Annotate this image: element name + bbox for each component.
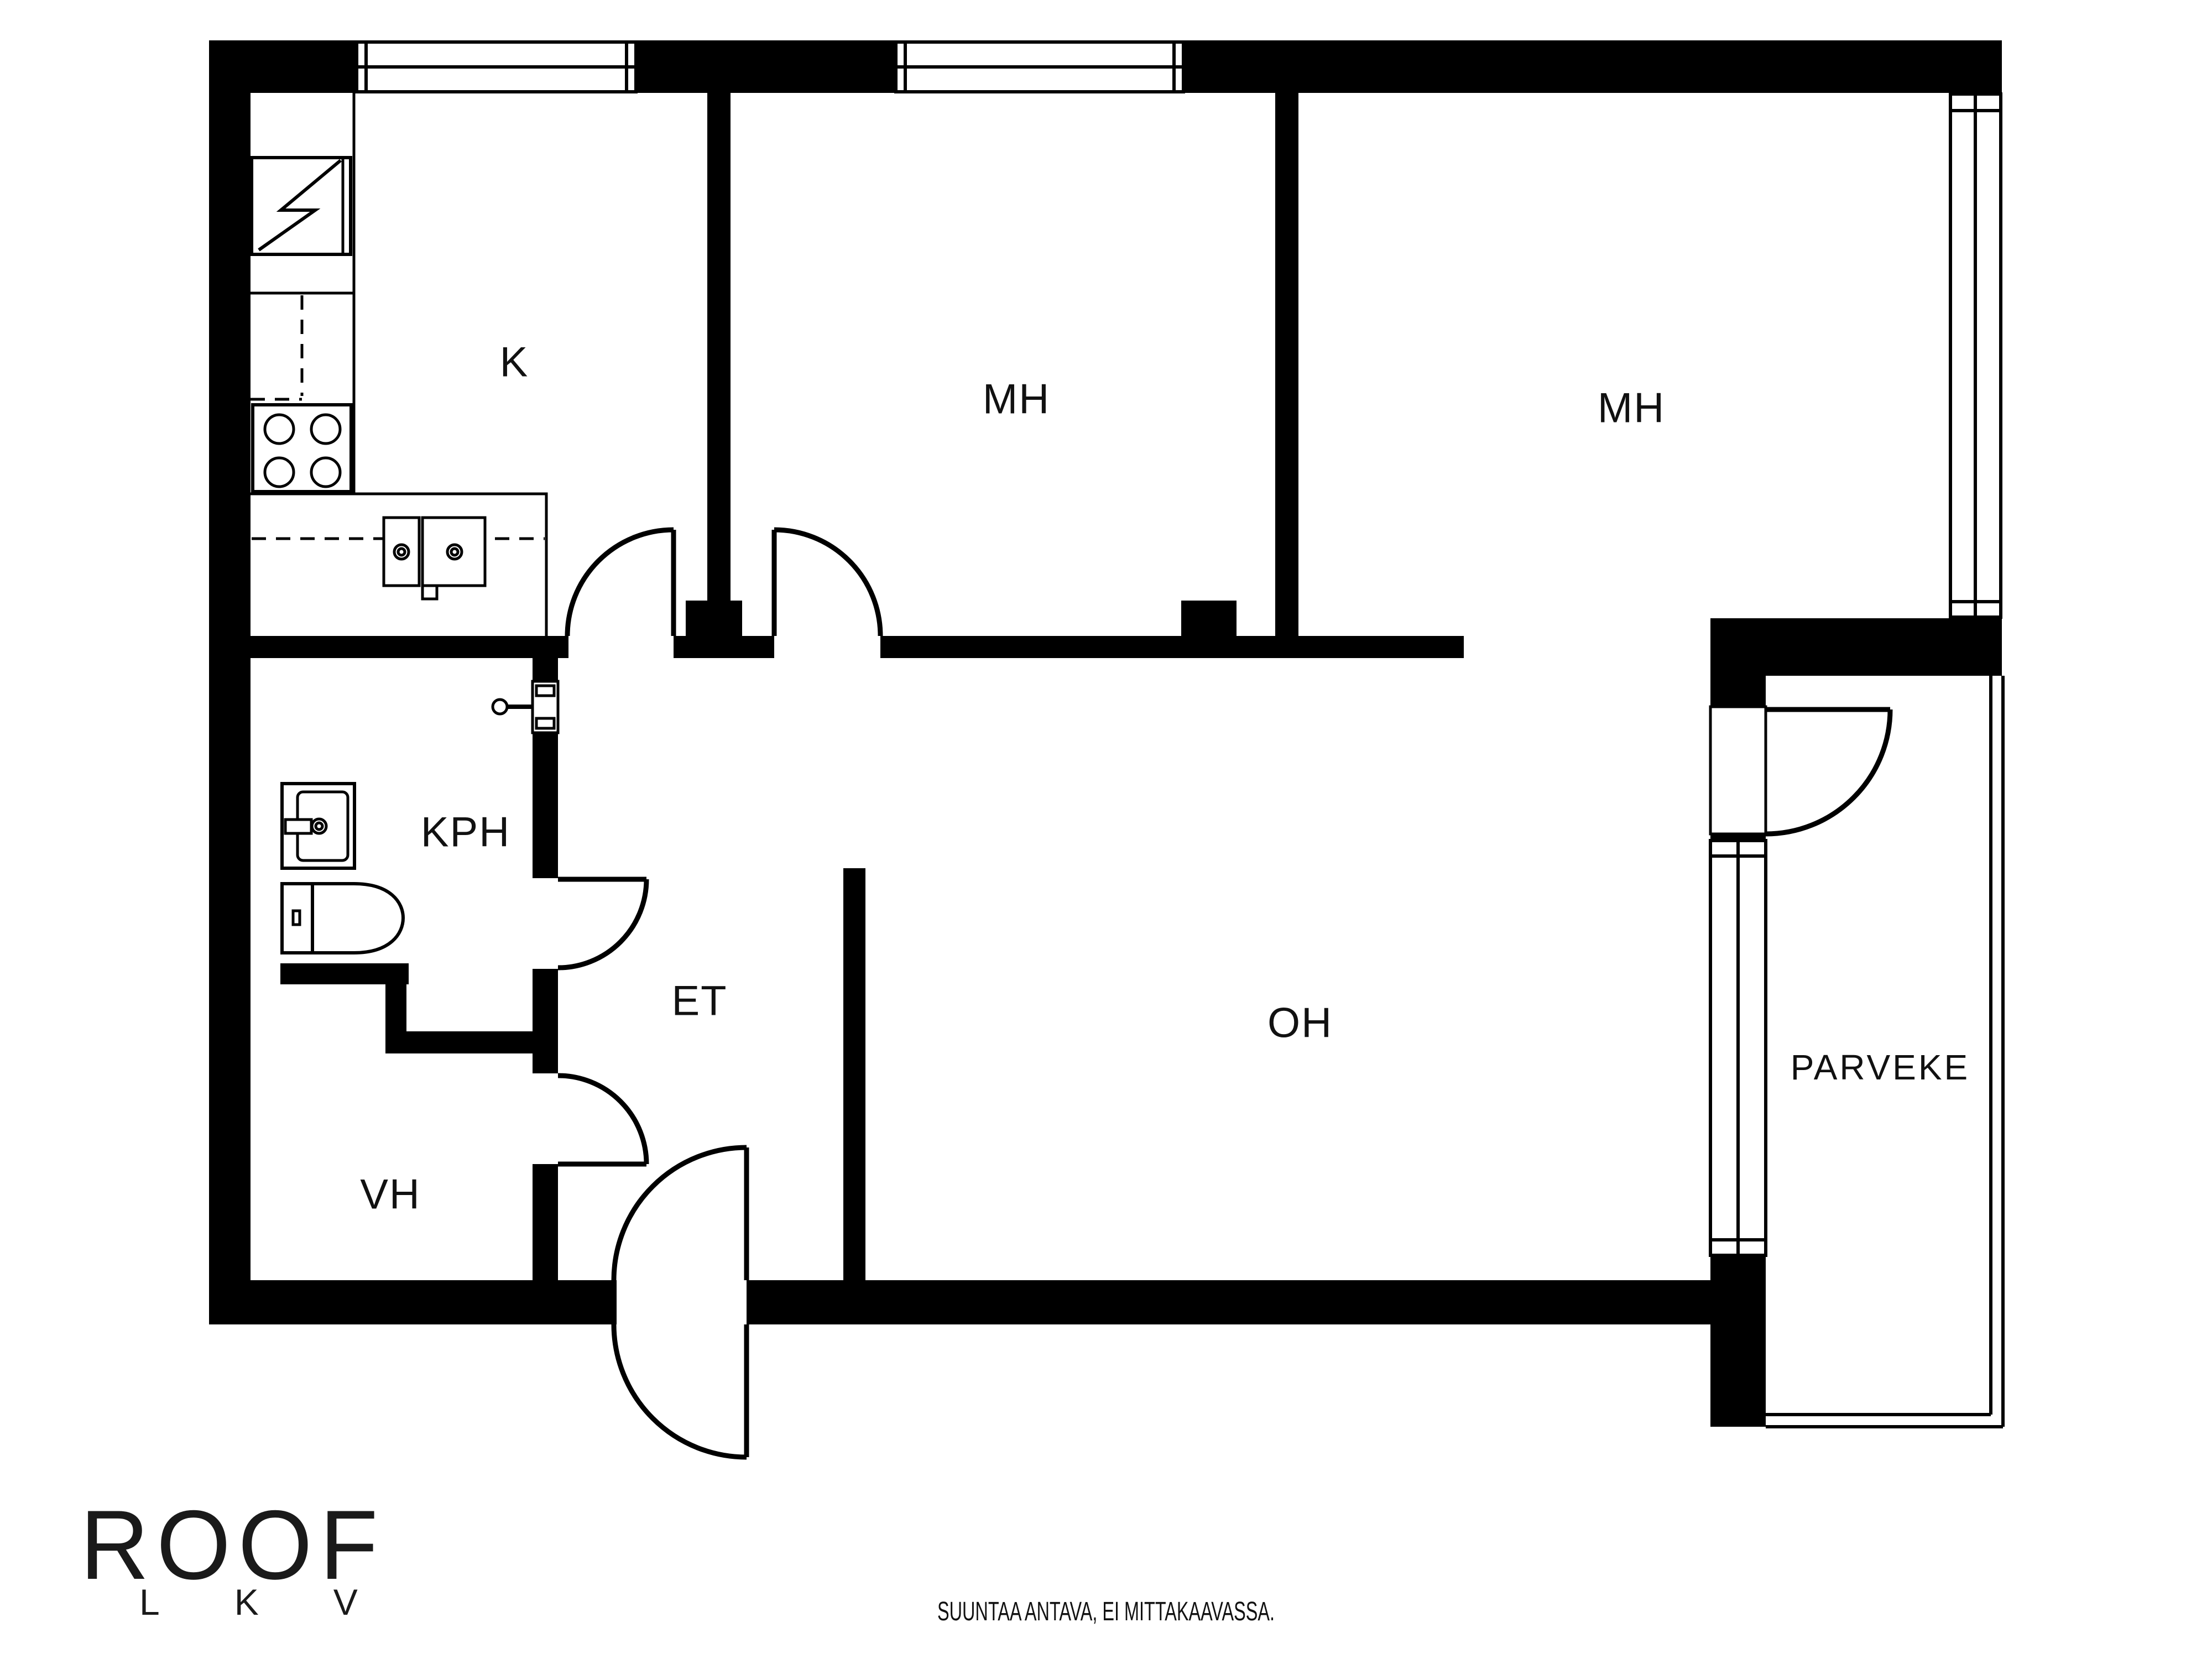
balcony-west-window-icon bbox=[1710, 841, 1766, 1255]
duct-stub bbox=[1181, 601, 1237, 636]
logo-sub-text: LKV bbox=[139, 1582, 432, 1623]
bedroom2-east-window-icon bbox=[1950, 94, 2001, 617]
wall-bedroom1-bedroom2 bbox=[1275, 93, 1298, 636]
closet-door-opening bbox=[533, 1073, 558, 1164]
wall-bathroom-closet-1 bbox=[280, 963, 409, 984]
bedroom1-door-swing-icon bbox=[774, 530, 880, 636]
kitchen-sink-icon bbox=[384, 518, 485, 599]
floorplan-page: K MH MH KPH ET OH VH PARVEKE ROOF LKV SU… bbox=[0, 0, 2212, 1659]
balcony-door-opening bbox=[1710, 707, 1766, 834]
washbasin-icon bbox=[282, 784, 354, 868]
wall-bottom bbox=[209, 1280, 1766, 1324]
room-label-kitchen: K bbox=[500, 339, 529, 386]
bedroom1-window-icon bbox=[896, 42, 1183, 92]
wall-kitchen-bedroom1 bbox=[707, 93, 731, 601]
wall-bathroom-east bbox=[533, 658, 558, 1280]
wall-bathroom-closet-3 bbox=[385, 1031, 535, 1053]
room-label-bedroom2: MH bbox=[1598, 385, 1665, 432]
kitchen-door-opening bbox=[568, 636, 674, 658]
fridge-icon bbox=[252, 158, 351, 254]
disclaimer-text: SUUNTAA ANTAVA, EI MITTAKAAVASSA. bbox=[937, 1597, 1275, 1626]
shower-mixer-icon bbox=[493, 681, 558, 733]
closet-door-swing-icon bbox=[558, 1076, 646, 1164]
bedroom1-door-opening bbox=[774, 636, 880, 658]
room-label-closet: VH bbox=[360, 1171, 421, 1218]
toilet-icon bbox=[282, 884, 403, 953]
room-label-living: OH bbox=[1267, 1000, 1333, 1047]
room-label-entrance: ET bbox=[671, 978, 727, 1025]
wall-left bbox=[209, 40, 251, 1324]
balcony-door-swing-icon bbox=[1766, 709, 1890, 834]
room-label-bedroom1: MH bbox=[983, 376, 1050, 423]
bathroom-door-opening bbox=[533, 878, 558, 969]
logo: ROOF LKV bbox=[80, 1490, 432, 1623]
wall-entrance-living-spur bbox=[843, 868, 865, 1280]
floor-plan-drawing: K MH MH KPH ET OH VH PARVEKE ROOF LKV SU… bbox=[0, 0, 2212, 1659]
entry-door-opening bbox=[617, 1280, 747, 1324]
bathroom-fixtures bbox=[282, 681, 558, 953]
kitchen-door-swing-icon bbox=[567, 530, 674, 636]
wall-kitchen-bedroom1-foot bbox=[686, 601, 742, 636]
kitchen-window-icon bbox=[357, 42, 636, 92]
room-label-balcony: PARVEKE bbox=[1791, 1047, 1970, 1087]
room-label-bathroom: KPH bbox=[421, 809, 510, 856]
bathroom-door-swing-icon bbox=[558, 879, 646, 968]
wall-bedroom2-south bbox=[1710, 618, 2002, 676]
stove-icon bbox=[253, 405, 351, 492]
